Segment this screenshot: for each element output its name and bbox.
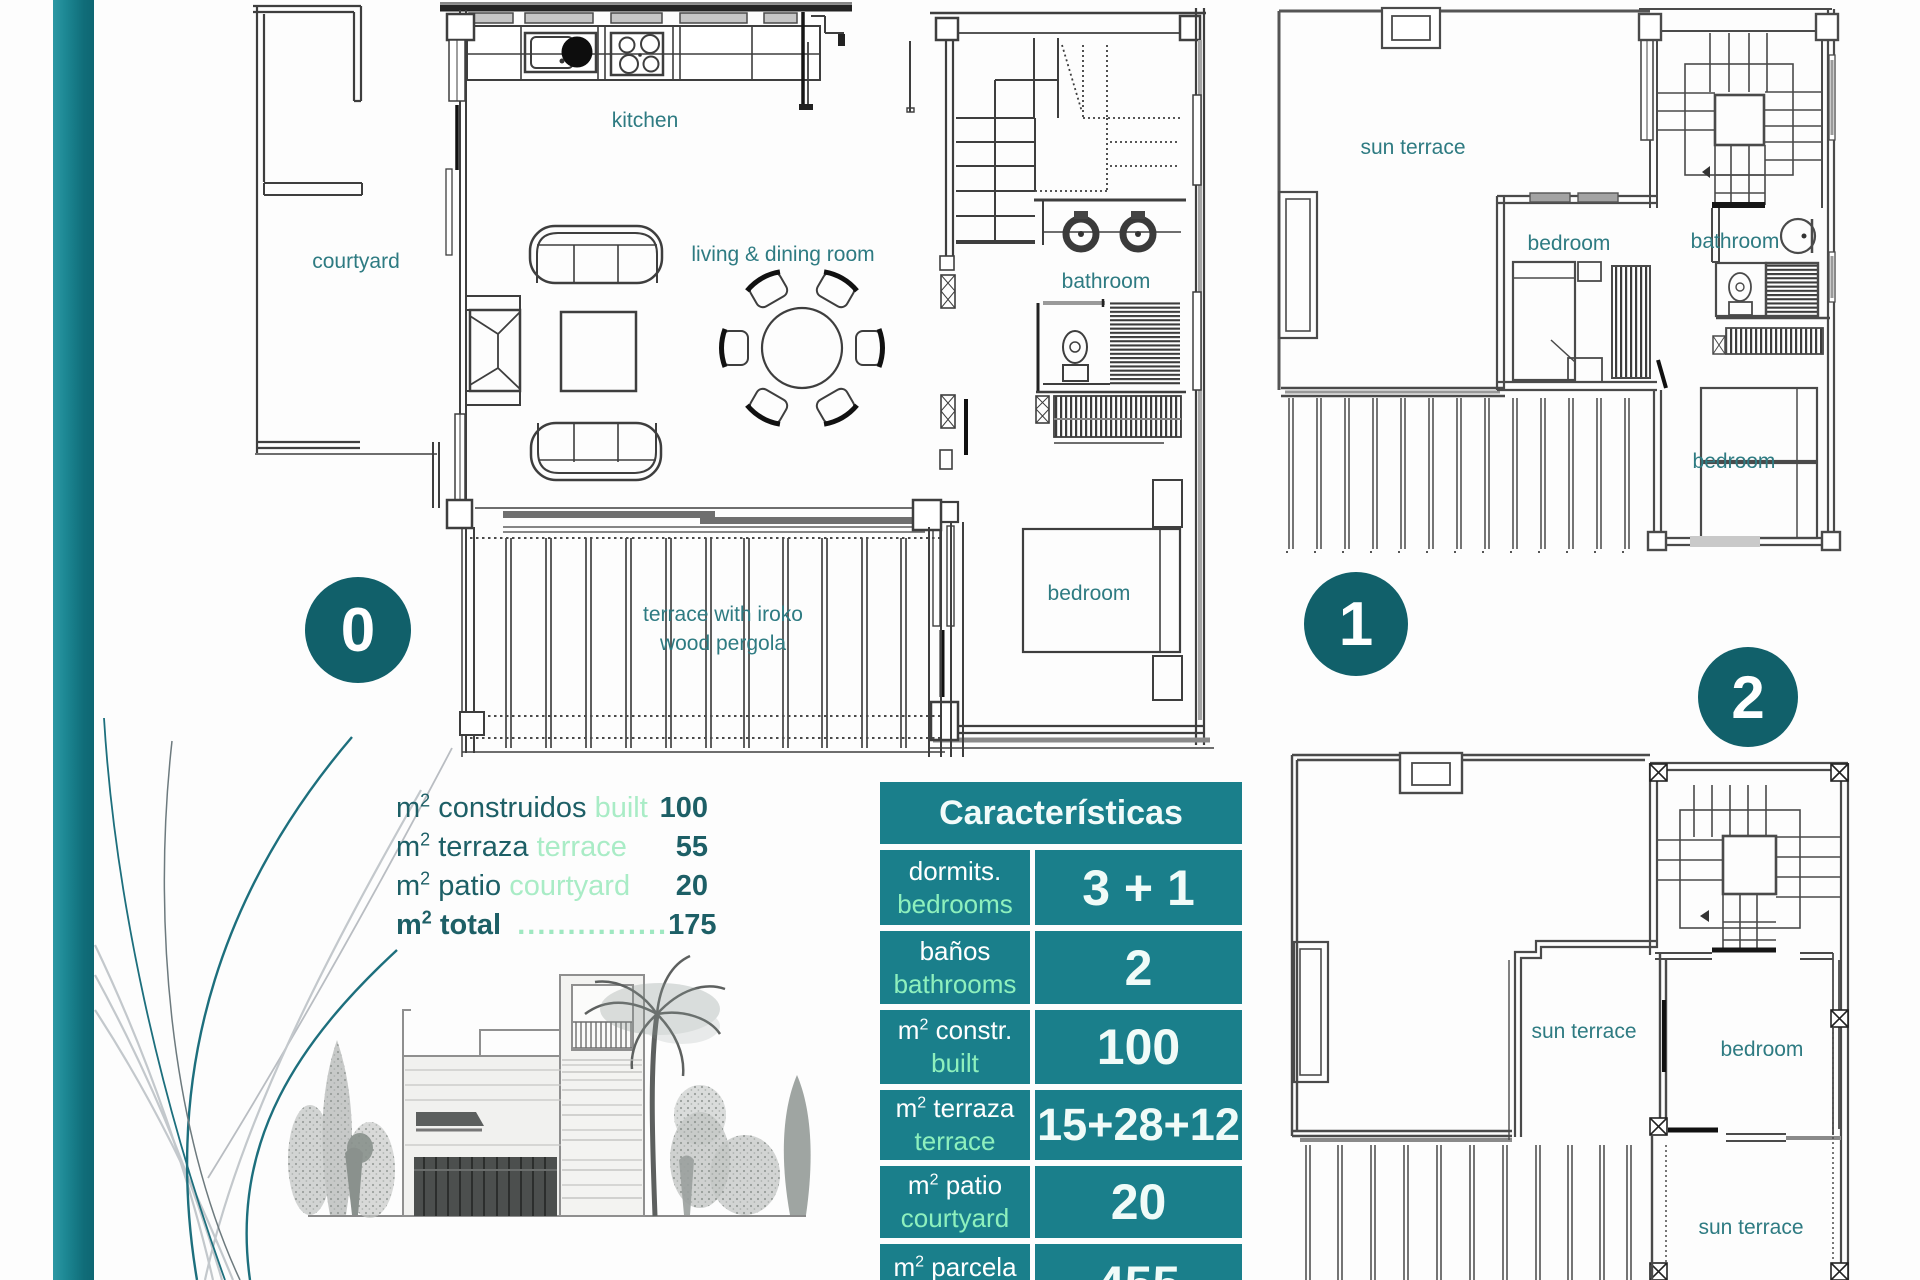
svg-text:terrace with iroko: terrace with iroko [643, 603, 803, 626]
svg-text:bedroom: bedroom [1721, 1038, 1804, 1061]
svg-text:bedroom: bedroom [1528, 232, 1611, 255]
svg-text:bedroom: bedroom [1048, 582, 1131, 605]
svg-text:sun terrace: sun terrace [1531, 1020, 1636, 1043]
svg-text:bathroom: bathroom [1691, 230, 1780, 253]
svg-text:sun terrace: sun terrace [1698, 1216, 1803, 1239]
svg-text:bathroom: bathroom [1062, 270, 1151, 293]
svg-text:sun terrace: sun terrace [1360, 136, 1465, 159]
svg-text:kitchen: kitchen [612, 109, 679, 132]
svg-text:2: 2 [1731, 664, 1764, 731]
svg-text:0: 0 [341, 596, 375, 665]
svg-text:bedroom: bedroom [1693, 450, 1776, 473]
svg-text:wood pergola: wood pergola [659, 632, 786, 655]
svg-text:1: 1 [1339, 590, 1373, 659]
svg-text:courtyard: courtyard [312, 250, 400, 273]
svg-text:living & dining room: living & dining room [691, 243, 874, 266]
